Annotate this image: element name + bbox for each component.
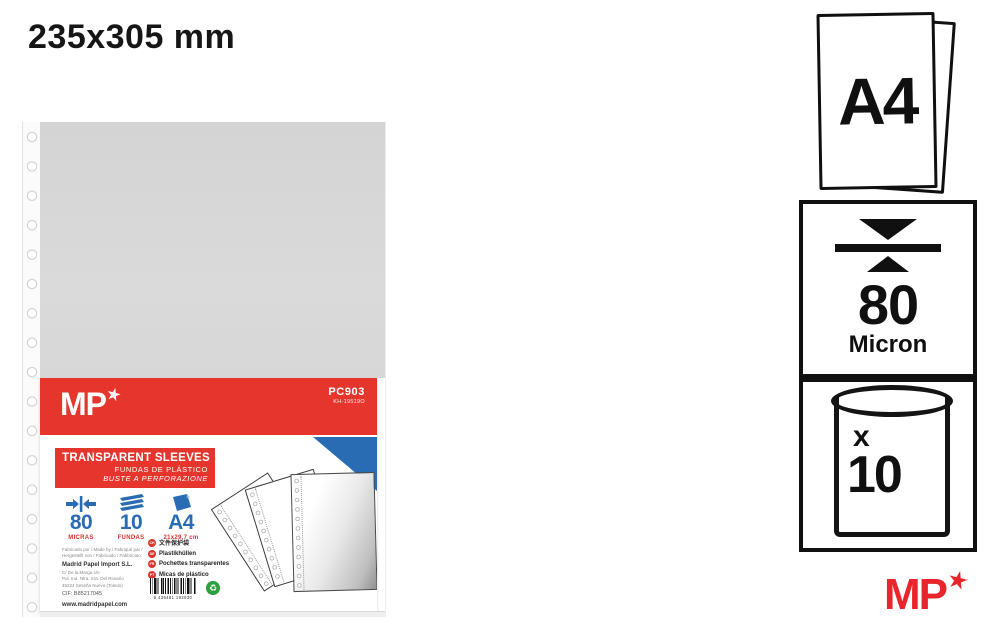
star-icon: ★ [104,384,123,407]
spec-thickness-label: MICRAS [58,535,104,541]
stack-icon [108,492,154,512]
label-header: MP★ PC903 KH-19519O [40,378,377,435]
sku-block: PC903 KH-19519O [328,386,365,405]
thickness-value: 80 [858,277,918,333]
product-title-box: TRANSPARENT SLEEVES FUNDAS DE PLÁSTICO B… [55,448,215,488]
language-label: Micas de plástico [159,572,209,578]
product-image-canvas: 235x305 mm MP★ PC903 KH-19519O TRANSPARE… [0,0,1000,641]
label-card: MP★ PC903 KH-19519O TRANSPARENT SLEEVES … [40,378,377,612]
manufacturer-block: Fabricado por / Made by / Fabriqué par /… [62,547,148,612]
brand-logo-footer: MP★ [884,566,967,620]
pocket-opening-icon [831,385,953,417]
label-body: TRANSPARENT SLEEVES FUNDAS DE PLÁSTICO B… [40,435,377,612]
gauge-icon-bottom-triangle [867,256,909,272]
gauge-icon-top-triangle [859,219,917,240]
manufacturer-name: Madrid Papel Import S.L. [62,561,148,569]
thickness-icon [58,492,104,512]
language-label: Pochettes transparentes [159,561,229,567]
language-badge: FR [148,560,156,568]
sleeve-holes-strip [247,488,284,584]
spec-format: A4 21x29,7 cm [156,492,206,541]
star-icon: ★ [944,564,970,597]
punched-holes-strip [22,122,42,617]
page-title: 235x305 mm [28,18,235,57]
made-by-line: Hergestellt von / Fabricado / Fabbricato… [62,553,148,559]
barcode-number: 8 435481 192630 [148,595,198,600]
format-label: A4 [837,62,917,139]
language-list: CH 文件保护袋 DE Plastikhüllen FR Pochettes t… [148,538,229,581]
language-row: DE Plastikhüllen [148,550,229,558]
thickness-box: 80 Micron [799,200,977,378]
green-dot-recycling-icon: ♻ [206,581,220,595]
language-label: Plastikhüllen [159,551,196,557]
language-badge: DE [148,550,156,558]
manufacturer-website: www.madridpapel.com [62,601,148,609]
sku-code: PC903 [328,386,365,398]
spec-quantity: 10 FUNDAS [108,492,154,541]
spec-thickness-value: 80 [58,512,104,534]
product-photo-sleeve: MP★ PC903 KH-19519O TRANSPARENT SLEEVES … [22,122,386,617]
gauge-icon-bar [835,244,941,252]
product-title-it: BUSTE A PERFORAZIONE [62,474,208,483]
product-title-en: TRANSPARENT SLEEVES [62,452,208,464]
format-a4-figure: A4 [818,13,958,193]
spec-format-value: A4 [156,512,206,534]
sleeve-transparent-area [40,122,385,378]
a4-sheet-icon [156,492,206,512]
blue-corner-decoration [313,437,377,491]
thickness-unit: Micron [849,331,928,359]
barcode-icon [150,578,196,594]
sku-subcode: KH-19519O [328,399,365,405]
brand-logo-text: MP [60,386,106,422]
barcode-block: 8 435481 192630 [148,578,198,600]
language-row: FR Pochettes transparentes [148,560,229,568]
language-badge: CH [148,539,156,547]
quantity-box: x 10 [799,378,977,552]
brand-logo: MP★ [60,385,120,423]
product-title-es: FUNDAS DE PLÁSTICO [62,465,208,474]
spec-thickness: 80 MICRAS [58,492,104,541]
spec-quantity-value: 10 [108,512,154,534]
sleeve-holes-strip [293,476,305,590]
brand-logo-footer-text: MP [884,570,946,619]
language-row: CH 文件保护袋 [148,538,229,547]
a4-front-sheet: A4 [816,12,937,190]
manufacturer-cif: CIF: B85217045 [62,591,148,599]
manufacturer-address: 45224 Seseña Nuevo (Toledo) [62,583,148,589]
language-label: 文件保护袋 [159,538,189,547]
quantity-value: 10 [847,445,901,505]
sleeve-bottom-seam [40,611,385,617]
